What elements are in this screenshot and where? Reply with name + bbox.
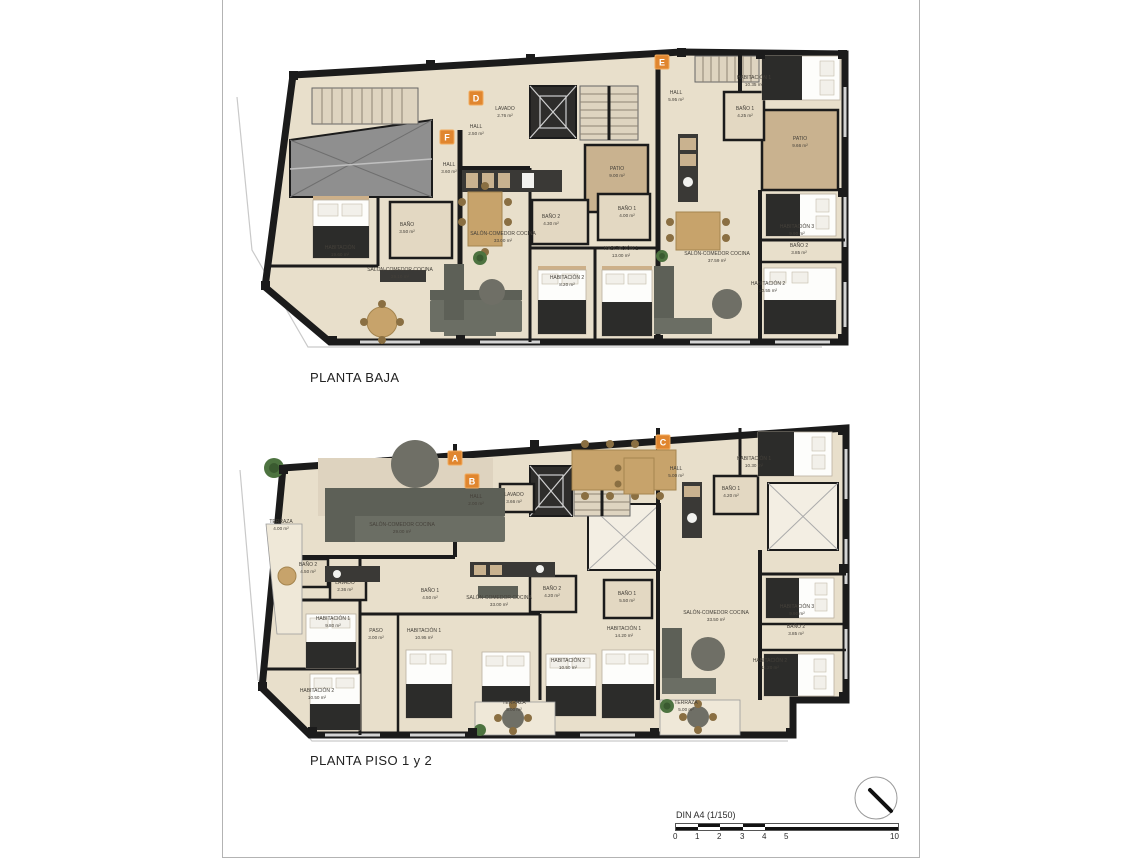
apartment-badge-b: B <box>465 474 480 489</box>
room-label: HALL2.00 m² <box>468 494 484 506</box>
room-label: BAÑO 14.25 m² <box>736 106 754 118</box>
room-label: BAÑO 24.30 m² <box>542 214 560 226</box>
room-label: HABITACIÓN 113.00 m² <box>604 246 638 258</box>
room-label: TERRAZA4.00 m² <box>269 519 292 531</box>
room-label: PASO3.00 m² <box>368 628 384 640</box>
room-label: HABITACIÓN 28.20 m² <box>550 275 584 287</box>
planta-baja-title: PLANTA BAJA <box>310 370 399 385</box>
room-label: PATIO9.66 m² <box>792 136 808 148</box>
apartment-badge-a: A <box>448 451 463 466</box>
room-label: HALL2.50 m² <box>468 124 484 136</box>
scale-tick: 4 <box>762 832 766 841</box>
room-label: LAVADO2.36 m² <box>335 580 355 592</box>
scale-tick: 10 <box>890 832 899 841</box>
scale-tick: 3 <box>740 832 744 841</box>
room-label: BAÑO 24.20 m² <box>543 586 561 598</box>
room-label: BAÑO 14.20 m² <box>722 486 740 498</box>
room-label: BAÑO 24.50 m² <box>299 562 317 574</box>
room-label: HABITACIÓN 19.80 m² <box>316 616 350 628</box>
room-label: SALÓN-COMEDOR COCINA29.10 m² <box>367 267 433 279</box>
room-label: HALL5.00 m² <box>668 466 684 478</box>
room-label: LAVADO3.66 m² <box>504 492 524 504</box>
scale-tick: 1 <box>695 832 699 841</box>
room-label: HALL3.60 m² <box>441 162 457 174</box>
apartment-badge-d: D <box>469 91 484 106</box>
room-label: BAÑO3.50 m² <box>399 222 415 234</box>
scale-tick: 0 <box>673 832 677 841</box>
room-label: SALÓN-COMEDOR COCINA33.00 m² <box>466 595 532 607</box>
room-label: HABITACIÓN 211.20 m² <box>753 658 787 670</box>
room-label: HALL5.95 m² <box>668 90 684 102</box>
north-arrow-icon <box>845 768 907 830</box>
room-label: BAÑO 14.50 m² <box>421 588 439 600</box>
room-label: HABITACIÓN19.60 m² <box>325 245 355 257</box>
room-label: BAÑO 23.85 m² <box>787 624 805 636</box>
scale-tick: 2 <box>717 832 721 841</box>
room-label: HABITACIÓN 210.50 m² <box>300 688 334 700</box>
room-label: LAVADO2.76 m² <box>495 106 515 118</box>
room-label: SALÓN-COMEDOR COCINA37.59 m² <box>684 251 750 263</box>
room-label: HABITACIÓN 110.95 m² <box>407 628 441 640</box>
room-label: HABITACIÓN 110.35 m² <box>737 75 771 87</box>
room-label: TERRAZA5.00 m² <box>502 700 525 712</box>
room-label: HABITACIÓN 210.55 m² <box>751 281 785 293</box>
room-label: BAÑO 15.50 m² <box>618 591 636 603</box>
floor-plan-document: { "colors": { "accent_orange": "#e0862f"… <box>0 0 1140 860</box>
room-label: BAÑO 14.00 m² <box>618 206 636 218</box>
scale-tick: 5 <box>784 832 788 841</box>
room-label: TERRAZA5.00 m² <box>674 700 697 712</box>
room-label: HABITACIÓN 210.50 m² <box>551 658 585 670</box>
room-label: PATIO9.00 m² <box>609 166 625 178</box>
apartment-badge-c: C <box>656 435 671 450</box>
scale-label: DIN A4 (1/150) <box>676 810 736 820</box>
apartment-badge-f: F <box>440 130 455 145</box>
room-label: SALÓN-COMEDOR COCINA29.00 m² <box>369 522 435 534</box>
room-label: SALÓN-COMEDOR COCINA33.00 m² <box>470 231 536 243</box>
room-label: HABITACIÓN 39.90 m² <box>780 604 814 616</box>
apartment-badge-e: E <box>655 55 670 70</box>
room-label: HABITACIÓN 114.20 m² <box>607 626 641 638</box>
labels-layer: LAVADO2.76 m²HALL2.50 m²HALL3.60 m²HALL5… <box>0 0 1140 860</box>
planta-piso-title: PLANTA PISO 1 y 2 <box>310 753 432 768</box>
room-label: HABITACIÓN 110.30 m² <box>737 456 771 468</box>
room-label: BAÑO 23.85 m² <box>790 243 808 255</box>
room-label: SALÓN-COMEDOR COCINA33.50 m² <box>683 610 749 622</box>
room-label: HABITACIÓN 39.90 m² <box>780 224 814 236</box>
